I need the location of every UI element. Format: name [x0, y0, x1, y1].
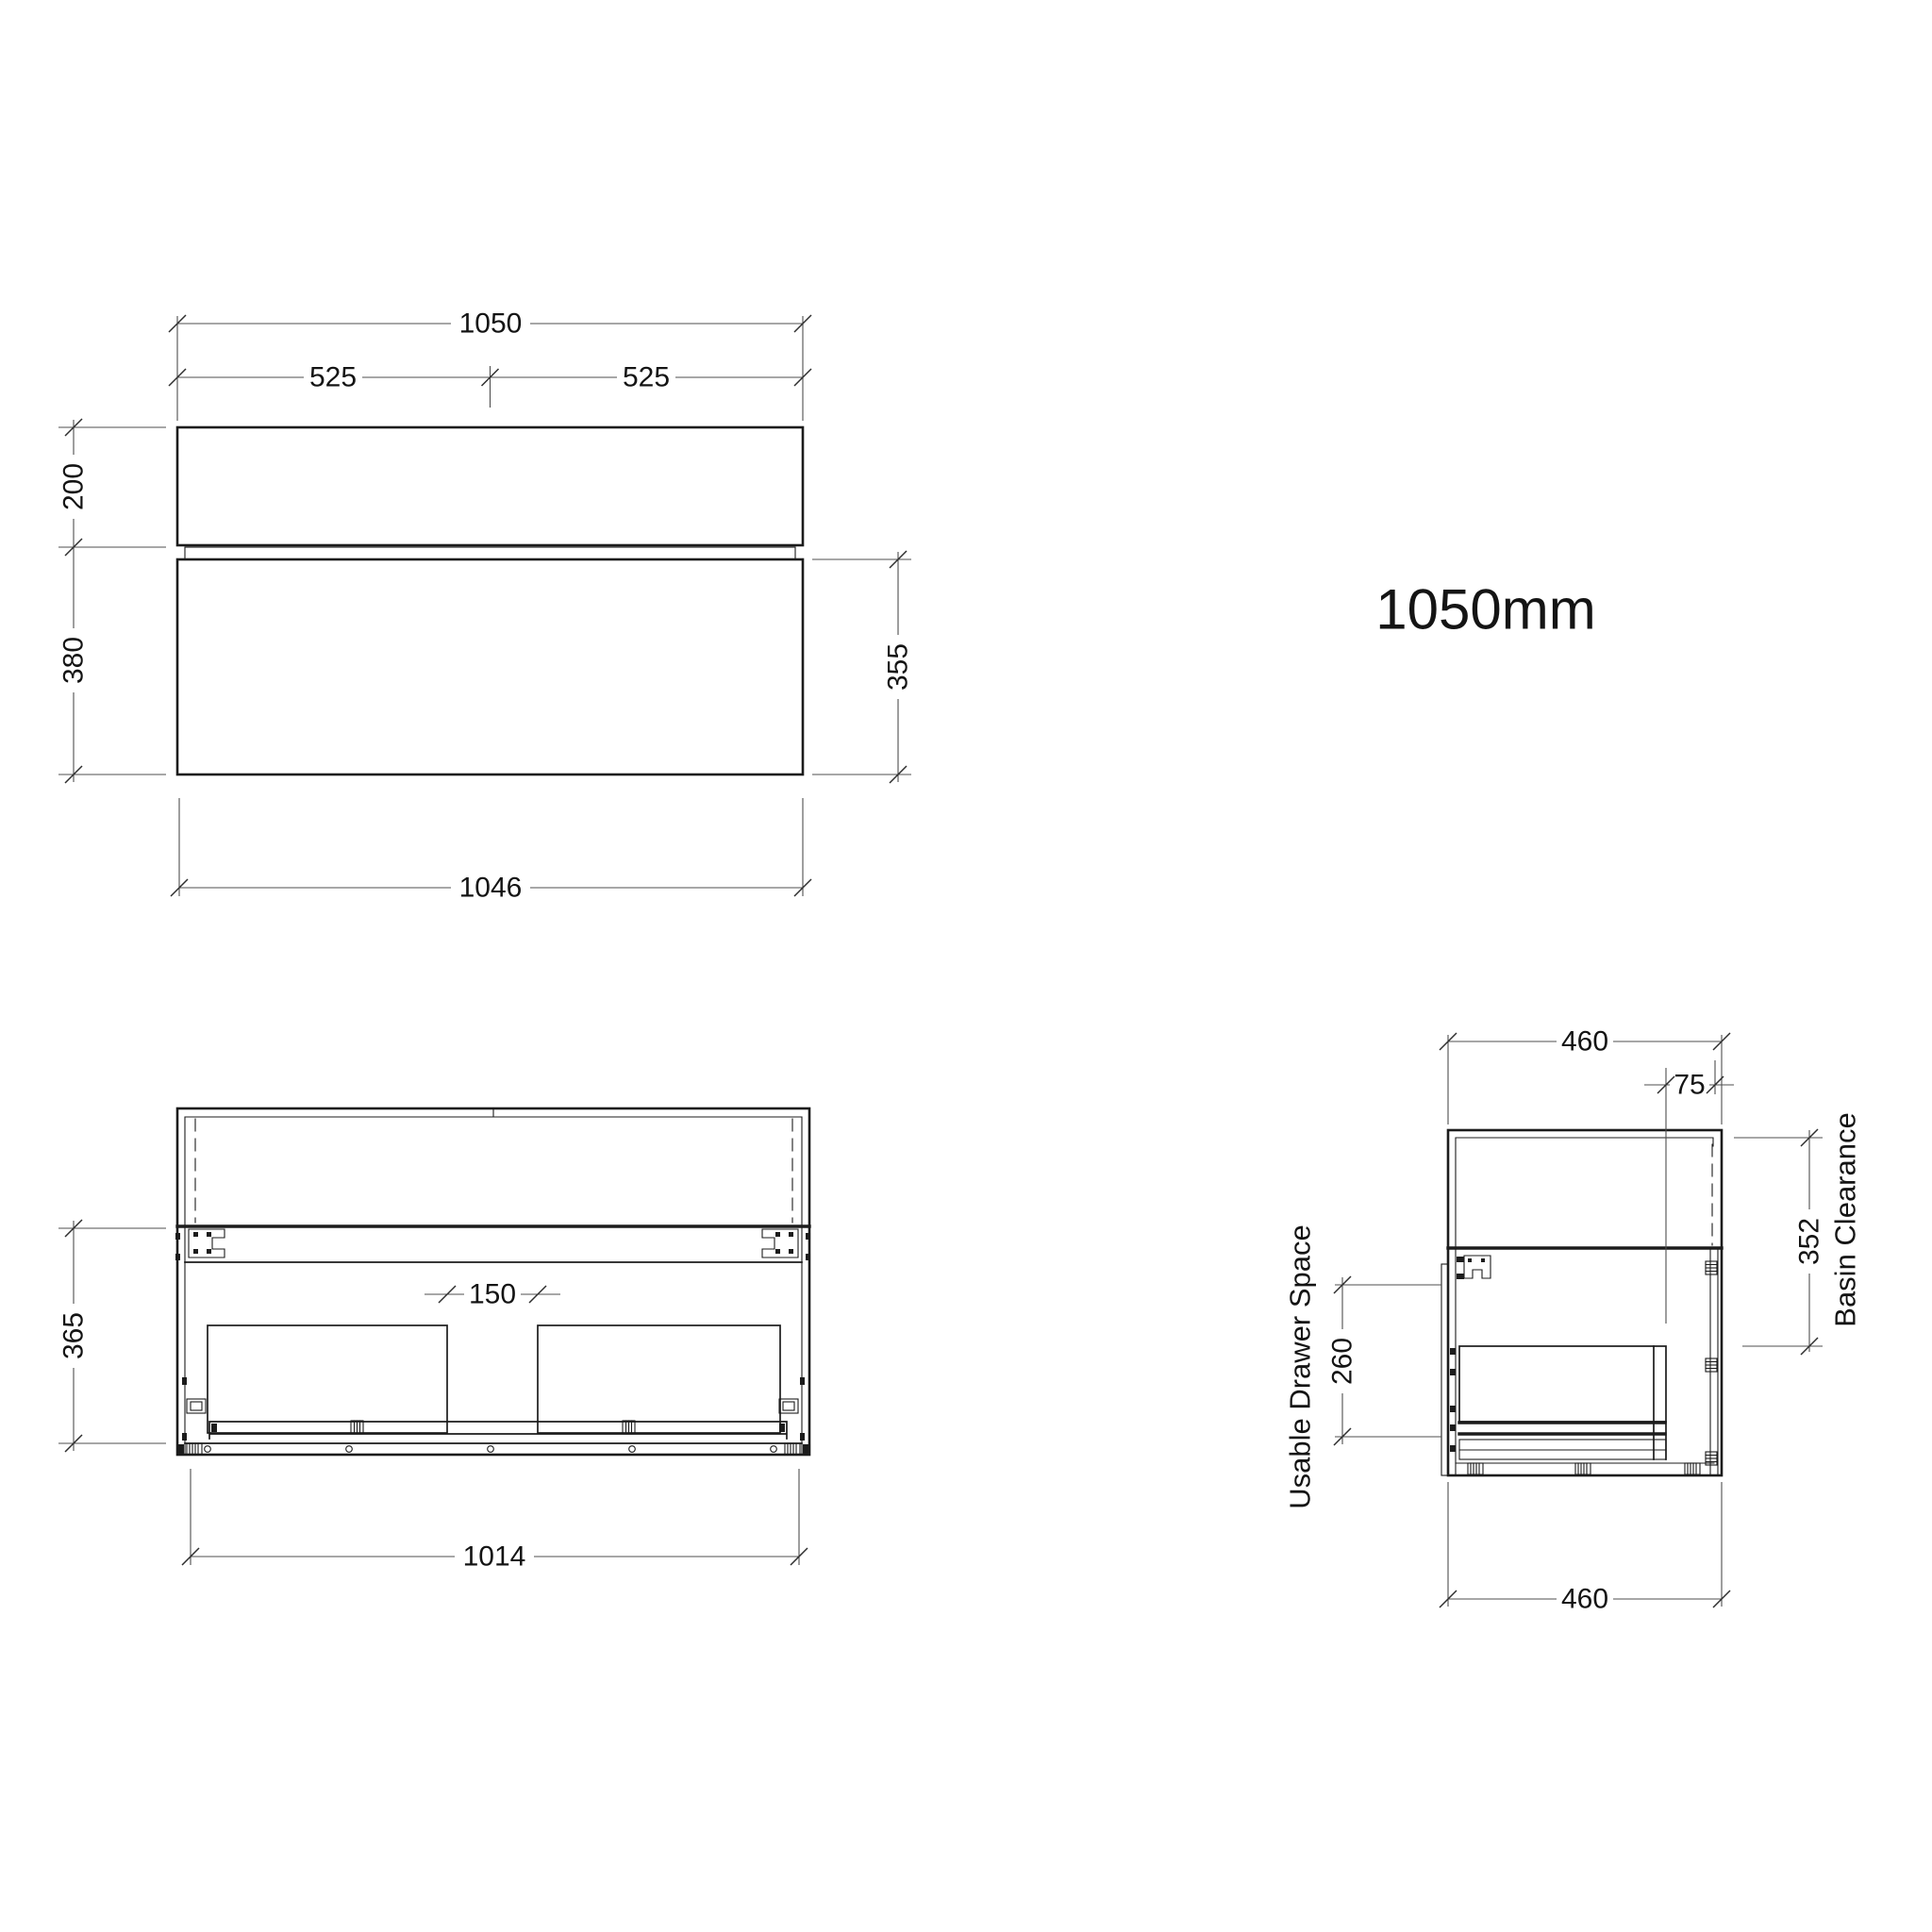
- side-dimension-lines: [1335, 1035, 1823, 1607]
- dim-carcass-side-height: 365: [58, 1312, 90, 1359]
- dim-carcass-width: 1046: [459, 873, 523, 904]
- usable-drawer-space-label: Usable Drawer Space: [1284, 1224, 1317, 1509]
- dim-edge-offset: 75: [1674, 1070, 1705, 1101]
- drawer-base-lines: [1459, 1423, 1665, 1434]
- front-bottom-drawer: [177, 559, 803, 774]
- side-dimension-ticks: [1334, 1033, 1818, 1607]
- foot-block-back: [1468, 1463, 1483, 1474]
- drawing-sheet: 1050 525 525 200 380 355 1046 1050mm: [0, 0, 1932, 1932]
- front-fixing-block-mid: [1706, 1358, 1717, 1372]
- dim-half-width-right: 525: [623, 362, 670, 393]
- front-top-drawer: [177, 427, 803, 545]
- front-dimension-lines: [58, 316, 911, 896]
- side-wall-bracket: [1457, 1256, 1491, 1279]
- drawer-cavity-right: [538, 1325, 780, 1433]
- dim-drawer-gap: 150: [469, 1279, 516, 1310]
- drawer-back-lines: [1654, 1346, 1666, 1459]
- dim-half-width-left: 525: [309, 362, 357, 393]
- runner-block-left: [351, 1421, 363, 1434]
- dim-internal-width: 1014: [463, 1541, 526, 1573]
- runner-block-right: [623, 1421, 635, 1434]
- side-section-view: 460 75 352 Basin Clearance 260 Usable Dr…: [1284, 1026, 1862, 1615]
- side-benchtop-inner-lines: [1456, 1138, 1713, 1248]
- wall-bracket-right: [762, 1229, 798, 1257]
- dim-bottom-drawer-height: 380: [58, 637, 90, 684]
- foot-block-front: [1685, 1463, 1700, 1474]
- side-drawer-box: [1459, 1346, 1666, 1422]
- benchtop-inner-lines: [185, 1108, 802, 1226]
- dim-overall-width: 1050: [459, 308, 523, 340]
- benchtop-hidden-edges: [195, 1119, 792, 1223]
- internal-dimension-lines: [58, 1221, 799, 1565]
- front-dimension-ticks: [65, 315, 907, 896]
- side-panel-inner-lines: [185, 1226, 802, 1455]
- front-internal-view: 150 365 1014: [58, 1108, 811, 1573]
- wall-strip-fixings: [1450, 1348, 1456, 1452]
- front-fixing-block-top: [1706, 1261, 1717, 1274]
- drawer-runner-rails: [209, 1422, 787, 1439]
- bottom-end-block-right: [785, 1443, 800, 1455]
- hinge-blocks: [187, 1399, 798, 1413]
- front-elevation-view: 1050 525 525 200 380 355 1046: [58, 308, 914, 904]
- wall-bracket-left: [189, 1229, 225, 1257]
- drawer-cavity-left: [208, 1325, 447, 1433]
- bottom-end-block-left: [187, 1443, 202, 1455]
- dim-depth-top: 460: [1561, 1026, 1608, 1058]
- foot-block-mid: [1575, 1463, 1591, 1474]
- vanity-technical-drawing: 1050 525 525 200 380 355 1046 1050mm: [0, 0, 1932, 1932]
- front-drawer-gap-strip: [185, 547, 795, 559]
- dim-basin-clearance: 352: [1794, 1218, 1825, 1265]
- basin-clearance-label: Basin Clearance: [1829, 1112, 1862, 1326]
- dim-top-drawer-height: 200: [58, 463, 90, 510]
- dim-depth-bottom: 460: [1561, 1584, 1608, 1615]
- dim-drawer-front-height: 355: [883, 643, 914, 691]
- dim-usable-drawer-space: 260: [1327, 1338, 1358, 1385]
- product-size-label: 1050mm: [1375, 578, 1595, 641]
- edge-fixing-marks: [175, 1233, 810, 1441]
- bottom-screw-holes: [205, 1446, 777, 1453]
